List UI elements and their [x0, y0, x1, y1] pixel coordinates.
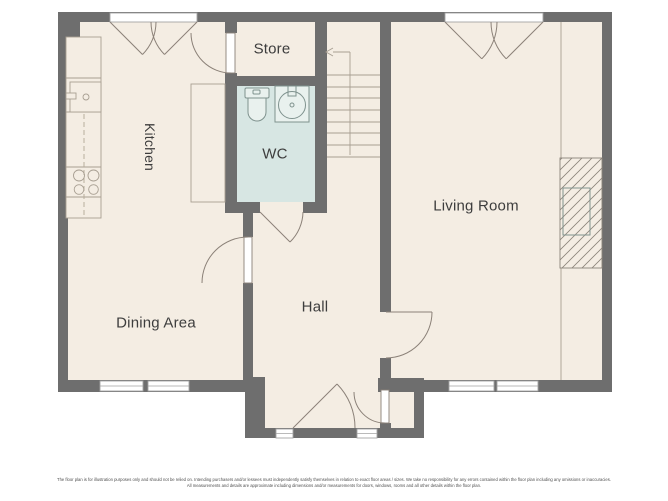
room-label-living-room: Living Room — [433, 198, 519, 215]
room-label-wc: WC — [262, 146, 287, 163]
wc-sink — [275, 86, 309, 122]
floor-plan: Kitchen Store WC Living Room Dining Area… — [0, 0, 668, 501]
kitchen-island — [191, 84, 225, 202]
room-label-store: Store — [254, 41, 291, 58]
wc-toilet — [245, 88, 269, 121]
disclaimer: The floor plan is for illustration purpo… — [0, 477, 668, 489]
disclaimer-line-2: All measurements and details are approxi… — [0, 483, 668, 489]
kitchen-sink-unit — [66, 82, 101, 112]
floor-plan-drawing — [0, 0, 668, 501]
room-label-hall: Hall — [302, 299, 329, 316]
room-label-kitchen: Kitchen — [142, 123, 158, 171]
floor-areas — [58, 12, 612, 438]
room-label-dining-area: Dining Area — [116, 315, 196, 332]
